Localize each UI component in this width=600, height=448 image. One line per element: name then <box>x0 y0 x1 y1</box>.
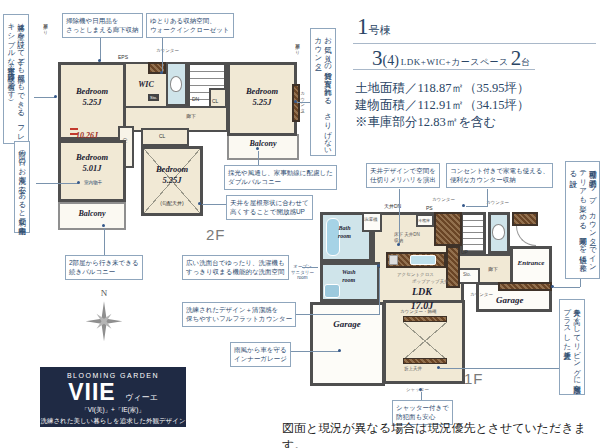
leader-line <box>379 268 380 314</box>
leader-dot <box>160 71 163 74</box>
product-tagline: 洗練された美しい暮らしを追求した外観デザイン <box>40 417 186 426</box>
leader-dot <box>98 59 101 62</box>
callout-connected-balcony: 2部屋から行き来できる 続きバルコニー <box>65 255 143 280</box>
leader-line <box>554 287 580 288</box>
callout-inner-garage: 雨風から車を守る インナーガレージ <box>230 342 291 367</box>
living-counter-bottom-bar <box>403 358 447 364</box>
product-name-kana: ヴィーエ <box>125 393 158 402</box>
shoe-counter-hatch <box>512 212 538 226</box>
callout-ceiling-design: 天井デザインで空間を 仕切りメリハリを演出 <box>366 163 440 188</box>
storage-1f-label: Sto. <box>463 272 471 278</box>
shutter-label: シャッター <box>406 387 429 393</box>
leader-line <box>100 37 101 61</box>
leader-line <box>290 314 380 315</box>
plan-desc: LDK+WIC+カースペース <box>401 56 509 69</box>
toilet-icon-2f <box>170 76 182 92</box>
leader-line <box>36 183 78 184</box>
product-name-row: VIIE ヴィーエ <box>40 379 186 406</box>
leader-dot <box>198 202 201 205</box>
callout-sloped-ceiling: 天井を屋根形状に合わせて 高くすることで開放感UP <box>226 195 313 220</box>
balcony-right-label: Balcony <box>227 139 299 150</box>
compass-north-label: N <box>82 288 126 298</box>
balcony-left-label: Balcony <box>58 209 126 220</box>
plan-main-count: 3 <box>372 46 383 71</box>
callout-flat-counter: 洗練されたデザイン＋清潔感を 保ちやすいフルフラットカウンター <box>182 302 296 327</box>
leader-dot <box>419 388 422 391</box>
callout-washroom: 広い洗面台でゆったり、洗濯機も すっきり収まる機能的な洗面空間 <box>182 255 289 280</box>
counter-label-toilet: カウンター <box>486 200 509 206</box>
popup-ceiling-label: ポップアップ天井 <box>412 279 449 285</box>
leader-line <box>34 97 56 98</box>
callout-flexible-bedroom: 将来は壁を設けて子ども部屋にもできる、フレキシブルな主寝室（※壁設置は有償です） <box>3 14 29 144</box>
counter-label-2f-top: カウンター <box>156 48 179 54</box>
closet-right-label: CL <box>212 98 218 104</box>
leader-dot <box>54 95 57 98</box>
leader-line <box>487 189 488 206</box>
stairs-up-label: UP <box>461 249 468 255</box>
leader-line <box>202 204 226 205</box>
ldk-label: LDK 17.0J <box>400 285 444 312</box>
leader-dot <box>462 204 465 207</box>
plan-type: 3 (4) LDK+WIC+カースペース 2 台 <box>372 46 530 71</box>
leader-line <box>258 151 259 165</box>
floor-plan-flyer: 1号棟 3 (4) LDK+WIC+カースペース 2 台 土地面積／118.87… <box>0 0 600 448</box>
room-label-bedroom-b: Bedroom 5.01J <box>58 152 126 175</box>
counter-label-garage: カウンター <box>470 292 493 298</box>
plan-paren-count: (4) <box>383 53 399 69</box>
product-name-meaning: 「VI(美)」+「IE(家)」 <box>40 406 186 415</box>
leader-line <box>421 392 422 400</box>
counter-shelf-label: カウンター・飾棚 <box>400 309 436 315</box>
entrance-door-arc <box>516 226 536 246</box>
leader-line <box>162 37 163 73</box>
hall-2f-label: 廊下 <box>186 113 196 119</box>
folded-ceiling-label: 折上天井 <box>404 366 422 372</box>
leader-dot <box>294 100 297 103</box>
leader-dot <box>377 264 380 267</box>
living-counter-top-bar <box>403 316 447 322</box>
product-name: VIIE <box>68 379 115 405</box>
room-label-bedroom-d: Bedroom 5.25J <box>141 164 203 187</box>
garage-right-hatch <box>498 282 552 291</box>
kitchen-sink-icon <box>410 255 436 265</box>
disclaimer-text: 図面と現況が異なる場合は現況優先とさせていただきます。 <box>282 420 600 448</box>
leader-line <box>288 351 340 352</box>
callout-indoor-drying: 雨の日のお洗濯も安心、あると便利な室内物干 <box>14 141 30 233</box>
brand-name: BLOOMING GARDEN <box>40 372 186 379</box>
leader-dot <box>551 285 554 288</box>
toilet-icon-1f <box>492 224 505 240</box>
callout-hall-storage: 掃除機や日用品を さっとしまえる廊下収納 <box>62 13 143 38</box>
hall-1f-label: 廊下 <box>488 266 498 272</box>
indoor-drying-label: 室内物干 <box>84 180 102 186</box>
garage-note: ※車庫部分12.83㎡を含む <box>355 114 496 131</box>
building-unit: 号棟 <box>369 24 391 36</box>
floor-label-1f: 1F <box>464 370 484 387</box>
wash-label: Wash room <box>342 268 356 284</box>
room-label-bedroom-a: Bedroom 5.25J <box>58 86 126 109</box>
fridge-label: 冷蔵庫 <box>418 218 430 223</box>
brand-logo: BLOOMING GARDEN VIIE ヴィーエ 「VI(美)」+「IE(家)… <box>40 367 186 427</box>
floor-label-2f: 2F <box>206 226 226 243</box>
wall-option-tick-1 <box>70 128 78 130</box>
leader-dot <box>102 224 105 227</box>
roof-slope-label-left: 屋根下がり <box>43 20 48 66</box>
room-label-bedroom-c: Bedroom 5.25J <box>227 86 297 109</box>
leader-line <box>302 267 318 268</box>
eps-label: EPS <box>118 54 128 60</box>
counter-label-1f-top: カウンター <box>432 197 455 203</box>
building-number: 1 <box>357 14 369 39</box>
leader-line <box>297 102 310 103</box>
building-title: 1号棟 <box>357 14 391 40</box>
folded-ceiling-cross <box>403 322 447 360</box>
callout-double-balcony: 採光や風通し、家事動線に配慮した ダブルバルコニー <box>224 165 337 190</box>
callout-counter-storage: コンセント付きで家電も使える、 便利なカウンター収納 <box>446 163 553 188</box>
leader-line <box>104 228 105 255</box>
leader-dot <box>256 147 259 150</box>
plan-cars: 2 <box>511 46 522 71</box>
ps-label: PS <box>426 205 433 211</box>
stove-icon <box>389 255 398 265</box>
entrance-label: Entrance <box>510 259 552 268</box>
closet-mid-label: CL <box>159 133 165 139</box>
washbasin-icon <box>324 284 340 298</box>
garage-left-label: Garage <box>320 318 374 330</box>
leader-dot <box>397 243 400 246</box>
counter-storage-hatch <box>434 212 462 246</box>
counter-label-2f-right: カウンター <box>300 88 305 122</box>
storage-label-2f: Sto. <box>148 94 159 101</box>
garage-right-label: Garage <box>496 294 524 306</box>
stairs-1f <box>460 212 486 254</box>
wic-counter-hatch <box>148 62 166 74</box>
washer-label: 洗濯機 <box>364 217 378 223</box>
leader-dot <box>338 349 341 352</box>
bath-label: Bath room <box>338 224 351 240</box>
leader-line <box>399 189 400 245</box>
accent-cloth-label: アクセントクロス <box>397 272 434 278</box>
leader-dot <box>437 366 440 369</box>
compass-rose-icon <box>82 298 126 348</box>
land-area: 土地面積／118.87㎡（35.95坪） <box>355 80 530 97</box>
roof-slope-label-right: 屋根下がり <box>295 40 300 88</box>
callout-folded-ceiling: 天井を高くしてリビングに開放感をプラスした折上天井 <box>559 299 585 395</box>
plan-cars-unit: 台 <box>521 56 530 69</box>
compass: N <box>82 288 126 350</box>
header-rule-1 <box>353 43 596 44</box>
wall-option-tick-2 <box>70 133 78 135</box>
stairs-dn-label: DN <box>192 96 199 102</box>
building-area: 建物面積／112.91㎡（34.15坪） <box>355 97 530 114</box>
combined-size-label: 10.26J <box>76 131 98 142</box>
callout-entrance-shelf: 可動棚で収納力アップ、カウンターでインテリアも楽しめる、玄関周りを快適に整える設… <box>565 161 600 279</box>
sloped-ceiling-note: (勾配天井) <box>141 200 203 206</box>
leader-line <box>466 206 488 207</box>
room-label-wic: WIC <box>124 80 168 91</box>
closet-left-label: CL <box>122 138 127 158</box>
callout-display-counter: お気に入りの雑貨や写真を飾れる、さりげないカウンター <box>310 28 336 156</box>
leader-dot <box>77 181 80 184</box>
leader-line <box>440 368 559 369</box>
callout-wic: ゆとりある収納空間、 ウォークインクローゼット <box>146 13 234 38</box>
floor-storage-label: 床下 天井DN 収納 <box>394 232 420 243</box>
